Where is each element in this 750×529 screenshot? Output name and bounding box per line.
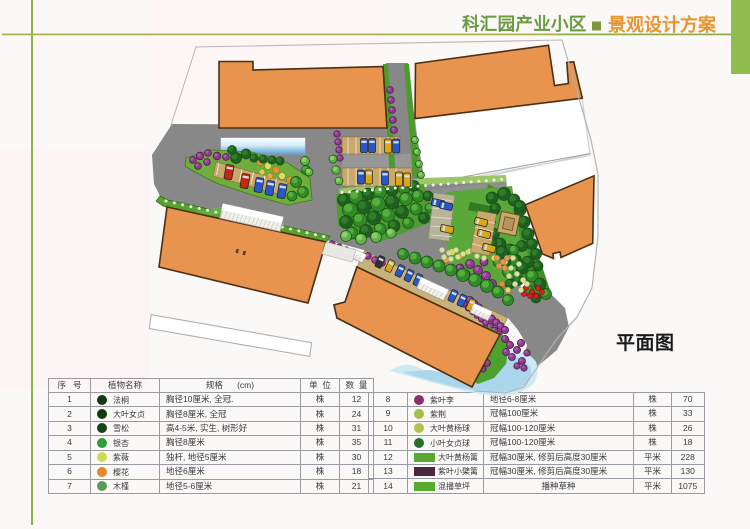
svg-text:景观设计方案: 景观设计方案 (608, 14, 717, 35)
svg-text:平面图: 平面图 (616, 332, 675, 354)
svg-text:科汇园产业小区: 科汇园产业小区 (462, 14, 587, 34)
